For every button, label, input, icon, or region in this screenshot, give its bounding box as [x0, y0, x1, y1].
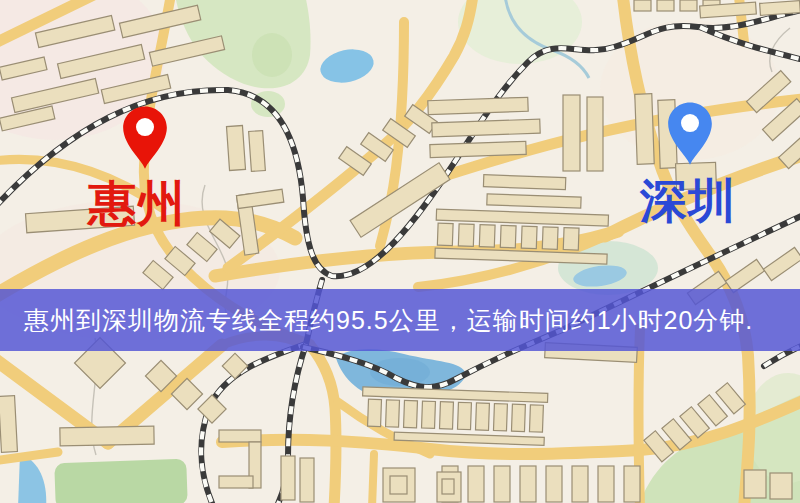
route-info-banner: 惠州到深圳物流专线全程约95.5公里，运输时间约1小时20分钟.	[0, 289, 800, 351]
map-canvas: 惠州 深圳 惠州到深圳物流专线全程约95.5公里，运输时间约1小时20分钟.	[0, 0, 800, 503]
destination-city-label: 深圳	[640, 178, 736, 225]
route-info-text: 惠州到深圳物流专线全程约95.5公里，运输时间约1小时20分钟.	[24, 304, 753, 337]
origin-city-label: 惠州	[88, 180, 186, 228]
map-background	[0, 0, 800, 503]
pin-hole	[681, 114, 699, 132]
pin-hole	[136, 118, 154, 136]
destination-pin-icon[interactable]	[667, 100, 713, 168]
origin-pin-icon[interactable]	[122, 104, 168, 172]
